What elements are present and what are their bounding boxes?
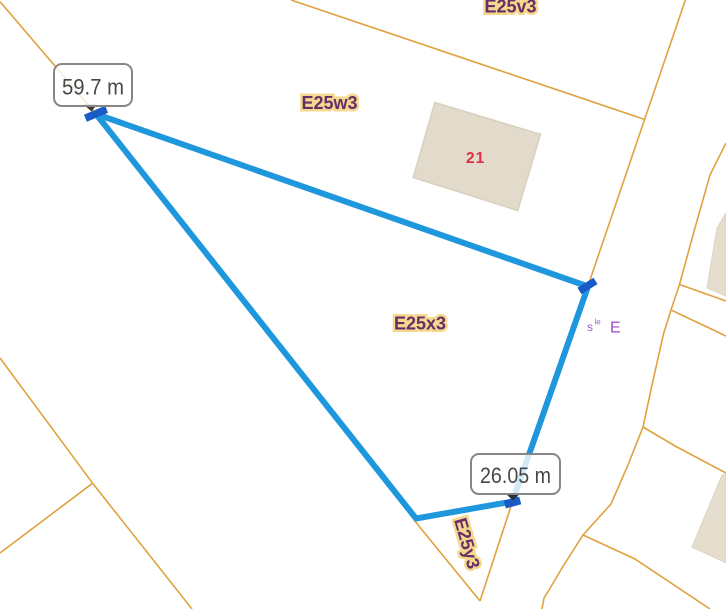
svg-text:s: s: [587, 320, 593, 334]
svg-text:E25w3: E25w3: [301, 93, 357, 113]
svg-text:E25x3: E25x3: [394, 314, 446, 334]
svg-text:le: le: [595, 318, 602, 327]
svg-text:59.7 m: 59.7 m: [62, 75, 124, 100]
svg-text:26.05 m: 26.05 m: [480, 463, 551, 488]
svg-text:E: E: [610, 320, 621, 337]
svg-text:21: 21: [466, 150, 485, 167]
svg-text:E25v3: E25v3: [484, 0, 536, 17]
